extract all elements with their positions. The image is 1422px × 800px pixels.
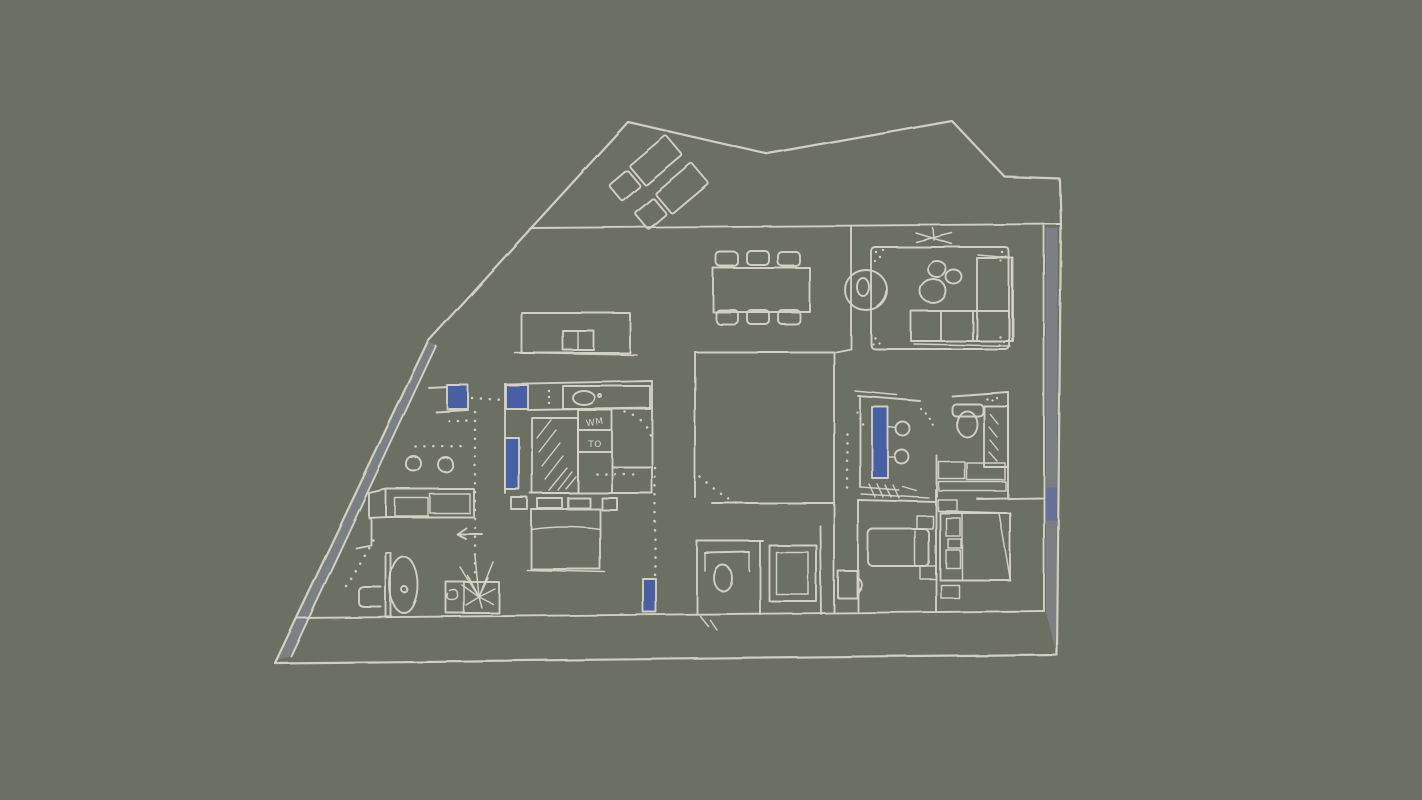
hall-door-mark [643, 579, 656, 612]
right-wall-shade [1046, 228, 1058, 652]
hall-double-wall [820, 526, 821, 614]
floor-plan-sketch: WM TO [0, 0, 1422, 800]
bedroom-top-wall-right [977, 498, 1044, 499]
kitchen-window-mark [447, 385, 468, 409]
right-wall-window-tint [1045, 487, 1057, 520]
laundry-window-mark-2 [505, 438, 519, 489]
background [0, 0, 1422, 800]
vanity-window-mark [872, 407, 888, 478]
tumble-dryer-label: TO [587, 440, 602, 450]
laundry-window-mark [506, 385, 528, 409]
floor-plan-canvas: WM TO [0, 0, 1422, 800]
